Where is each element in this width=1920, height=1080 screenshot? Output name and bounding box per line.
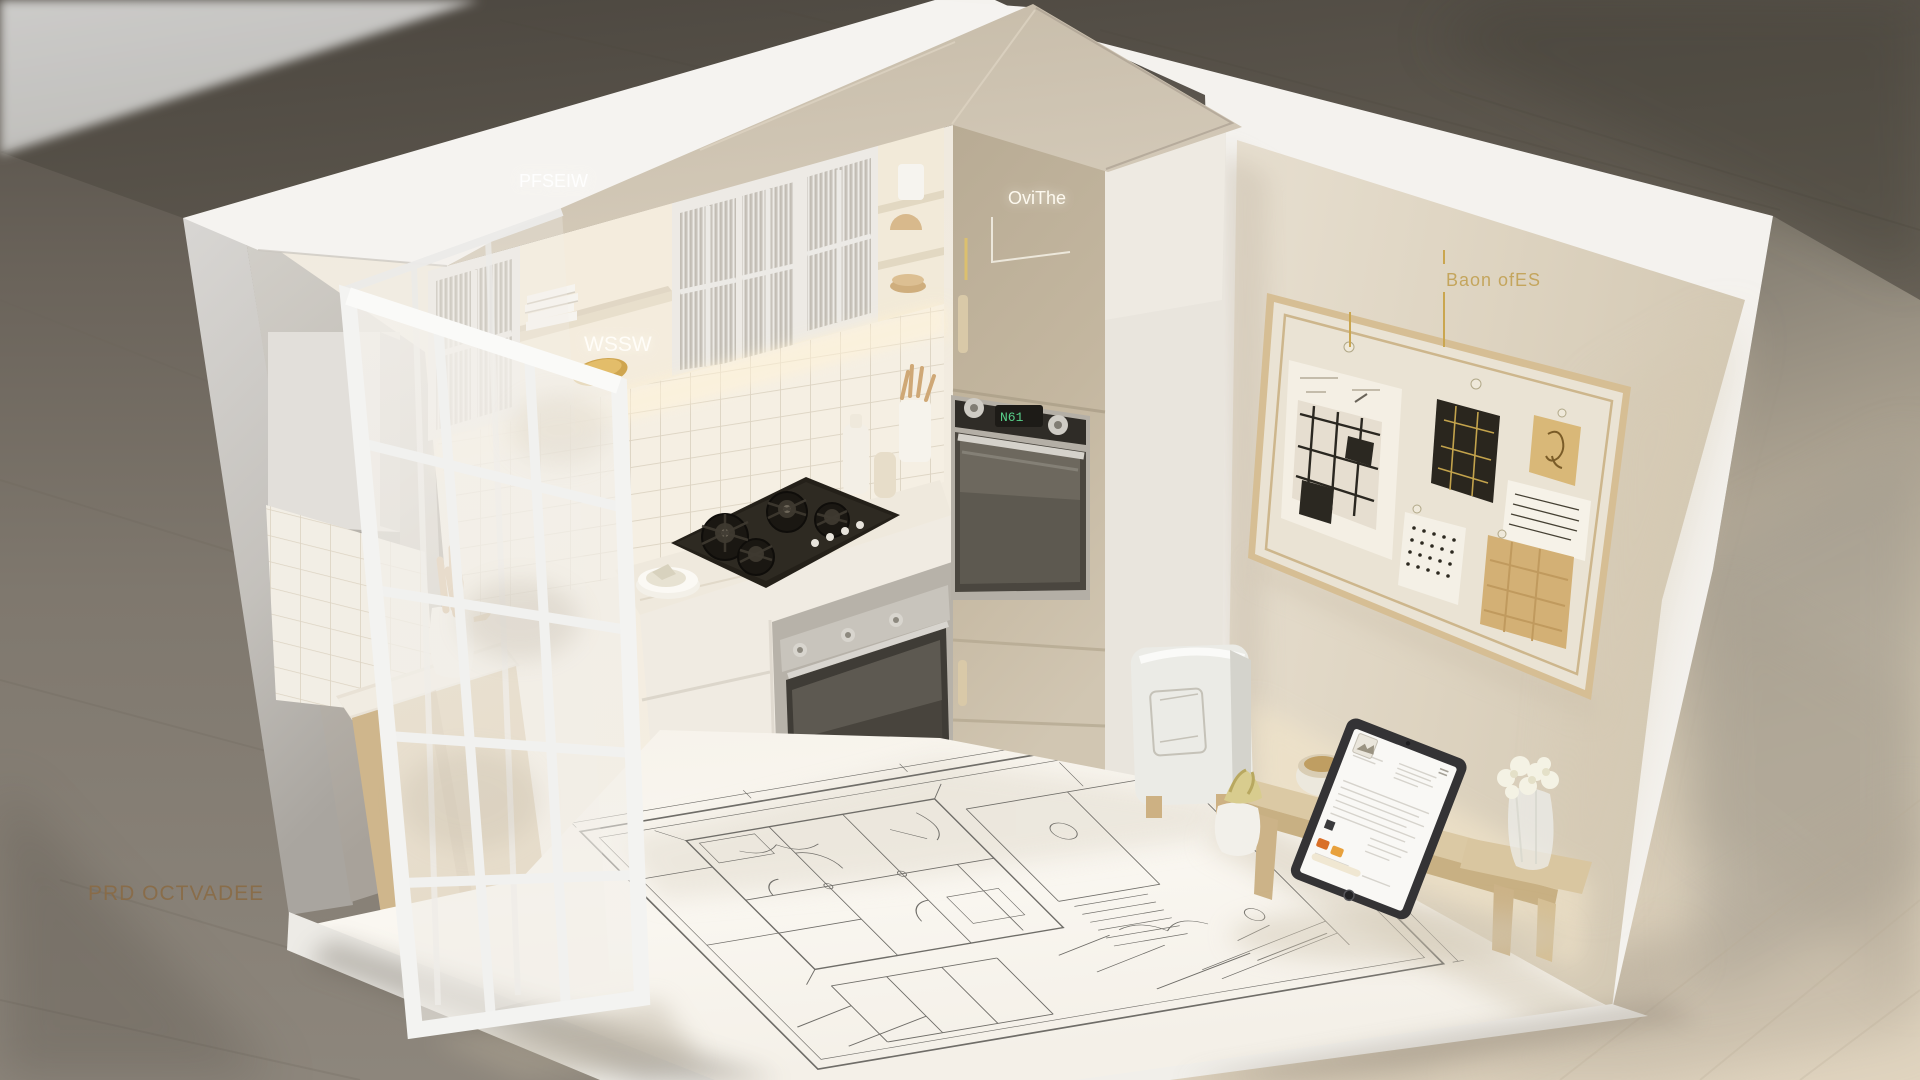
svg-text:WSSW: WSSW [584,333,652,356]
svg-text:PFSEIW: PFSEIW [519,171,588,191]
svg-text:PRD OCTVADEE: PRD OCTVADEE [88,882,264,905]
svg-text:Baon ofES: Baon ofES [1446,270,1541,290]
svg-text:OviThe: OviThe [1008,188,1066,208]
svg-text:N61: N61 [1000,410,1024,425]
